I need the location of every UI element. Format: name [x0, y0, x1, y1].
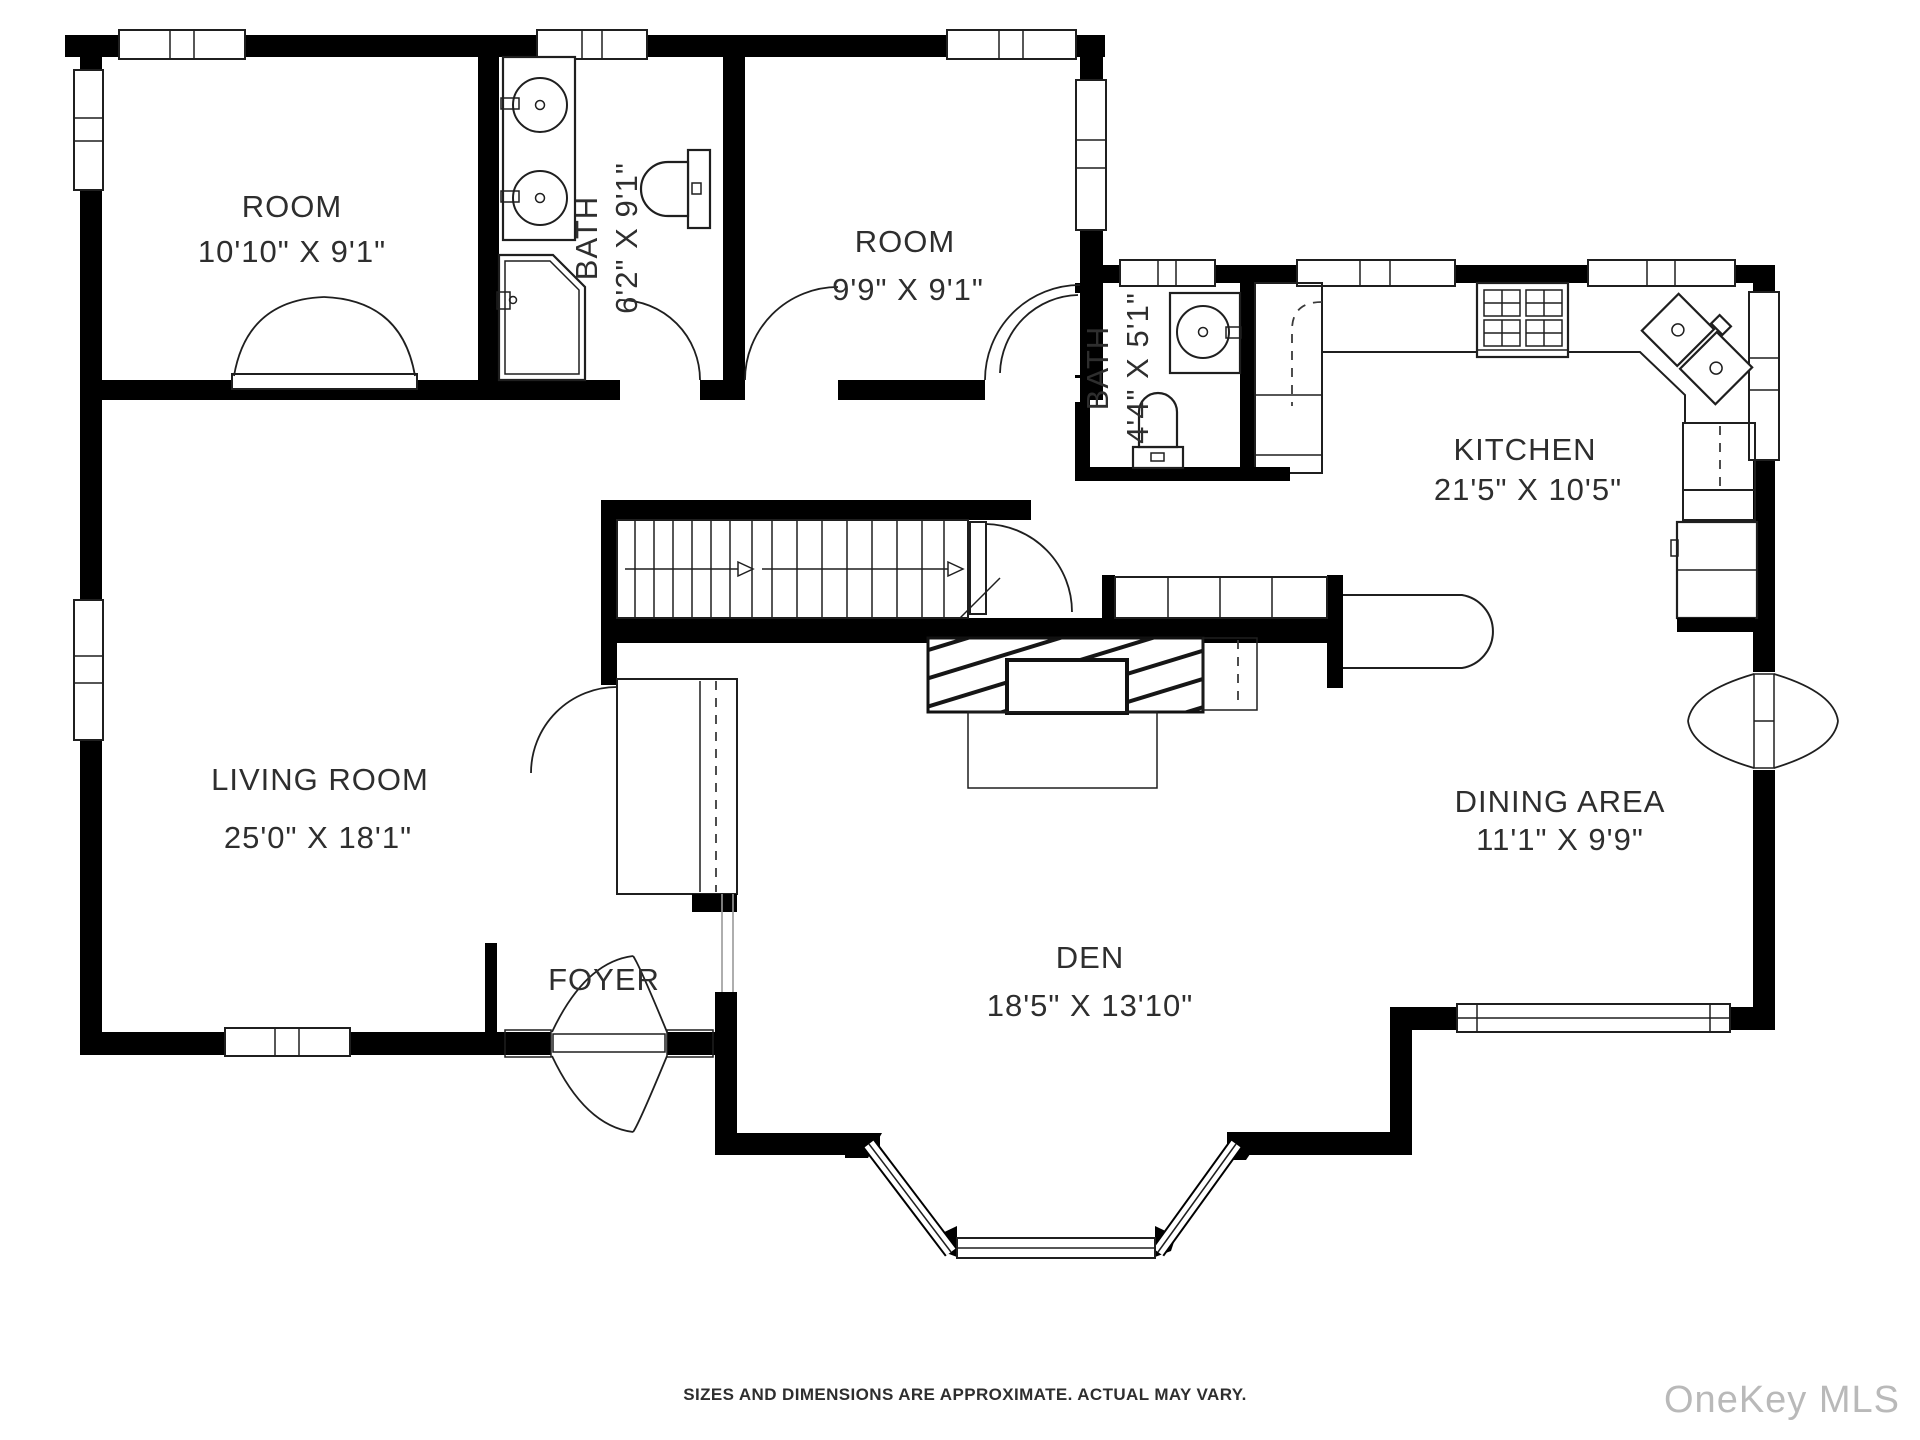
wall-basement-stair-stub-left [1102, 575, 1115, 628]
window-dining-bottom [1457, 1004, 1730, 1032]
svg-text:6'2" X 9'1": 6'2" X 9'1" [609, 162, 644, 314]
disclaimer-text: SIZES AND DIMENSIONS ARE APPROXIMATE. AC… [683, 1385, 1246, 1404]
label-living-room: LIVING ROOM [211, 762, 429, 797]
floor-plan-drawing: ROOM 10'10" X 9'1" BATH 6'2" X 9'1" ROOM… [0, 0, 1920, 1440]
svg-text:4'4" X 5'1": 4'4" X 5'1" [1120, 292, 1155, 444]
opening-room2-left [745, 378, 838, 402]
kitchen-counter-left [1255, 283, 1322, 473]
window-room1-left [74, 70, 103, 190]
wall-den-step-v [1390, 1007, 1412, 1152]
kitchen-counter-edge [1322, 352, 1685, 423]
under-stair-closet [617, 679, 737, 912]
label-kitchen: KITCHEN [1453, 432, 1596, 467]
svg-text:BATH: BATH [569, 196, 604, 280]
wall-room1-bath1 [478, 57, 499, 380]
label-room2: ROOM [855, 224, 955, 259]
label-room1: ROOM [242, 189, 342, 224]
closet-bottom-wall [692, 894, 737, 912]
dims-den: 18'5" X 13'10" [987, 988, 1193, 1023]
hearth [968, 712, 1157, 788]
vanity-bath2 [1170, 293, 1241, 373]
kitchen-sink [1642, 284, 1762, 404]
labels-layer: ROOM 10'10" X 9'1" BATH 6'2" X 9'1" ROOM… [198, 162, 1666, 1023]
wall-stairs-left [601, 520, 617, 685]
watermark-text: OneKey MLS [1664, 1379, 1900, 1421]
stair-hall-door [970, 522, 1072, 614]
svg-text:BATH: BATH [1080, 326, 1115, 410]
door-arc-room2-right [985, 285, 1080, 380]
floor-plan-page: ROOM 10'10" X 9'1" BATH 6'2" X 9'1" ROOM… [0, 0, 1920, 1440]
fireplace [928, 638, 1257, 788]
toilet-bath1 [641, 150, 710, 228]
dims-living-room: 25'0" X 18'1" [224, 820, 412, 855]
kitchen-wall-stub [1250, 467, 1290, 481]
label-dining-area: DINING AREA [1455, 784, 1666, 819]
window-living-bottom [225, 1028, 350, 1056]
stair-direction-arrows [625, 562, 963, 576]
label-foyer: FOYER [548, 962, 660, 997]
door-arc-bath2 [1000, 295, 1078, 373]
bay-window-left [869, 1144, 951, 1252]
wall-bath2-right [1240, 283, 1255, 473]
door-arc-room2-left [745, 287, 838, 380]
label-den: DEN [1056, 940, 1124, 975]
window-bath2-top [1120, 260, 1215, 286]
wall-basement-stair-stub-right [1327, 575, 1343, 688]
window-room2-top [947, 30, 1076, 59]
kitchen-cabinet-right-2 [1683, 490, 1755, 520]
dims-dining-area: 11'1" X 9'9" [1476, 822, 1644, 857]
opening-closet [617, 687, 630, 773]
wall-bath1-room2 [723, 57, 745, 380]
kitchen-peninsula [1343, 595, 1493, 668]
refrigerator [1671, 522, 1757, 618]
dims-room2: 9'9" X 9'1" [832, 272, 984, 307]
window-living-left [74, 600, 103, 740]
firebox [1007, 660, 1127, 713]
dims-room1: 10'10" X 9'1" [198, 234, 386, 269]
wall-stub-below-fridge [1677, 618, 1755, 632]
wall-den-left [715, 992, 737, 1155]
bay-window-bottom [957, 1238, 1155, 1258]
main-staircase [617, 520, 1000, 618]
window-kitchen-right [1749, 292, 1779, 460]
window-room2-right [1076, 80, 1106, 230]
window-bath1-top [537, 30, 647, 59]
fireplace-side-cabinet [1203, 638, 1257, 710]
closet-double-door-room1 [232, 297, 417, 389]
bay-window-right [1158, 1144, 1236, 1252]
wall-stairs-top [601, 500, 1031, 520]
window-kitchen-top-right [1588, 260, 1735, 286]
wall-foyer-stub [485, 943, 497, 1038]
door-arc-closet [531, 687, 617, 773]
dims-kitchen: 21'5" X 10'5" [1434, 472, 1622, 507]
double-vanity [501, 57, 575, 240]
opening-room2-right [985, 378, 1080, 402]
upper-cabinet-dashed [1292, 302, 1322, 406]
kitchen-cabinet-right [1683, 423, 1755, 490]
opening-bath1 [620, 378, 700, 402]
range-stove [1477, 283, 1568, 357]
window-room1-top [119, 30, 245, 59]
